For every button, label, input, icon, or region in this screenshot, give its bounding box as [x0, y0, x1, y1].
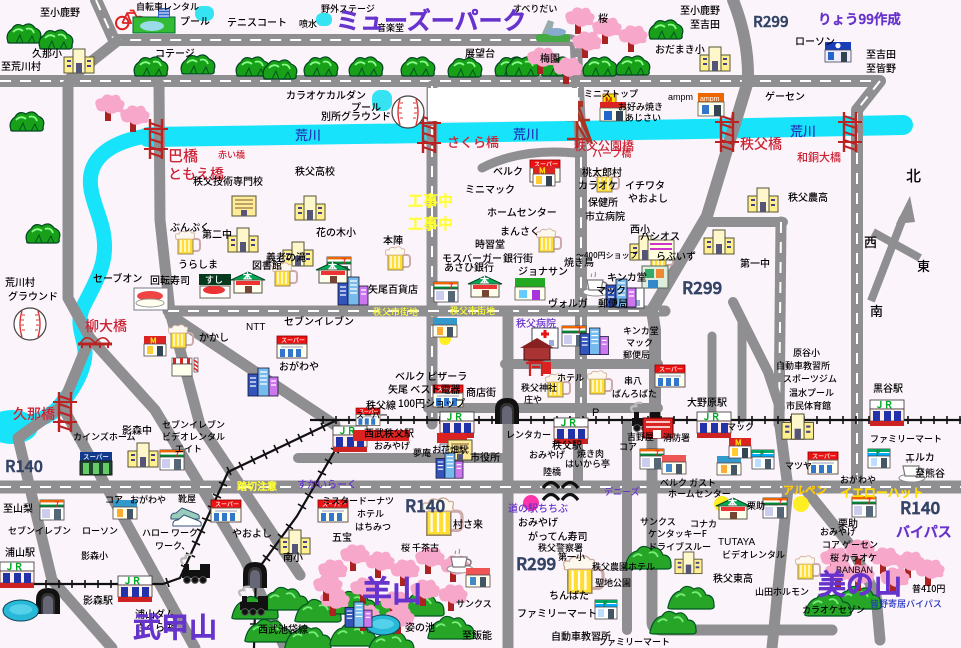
svg-text:山田ホルモン: 山田ホルモン: [755, 585, 809, 598]
svg-text:TUTAYA: TUTAYA: [718, 533, 756, 548]
svg-text:和銅大橋: 和銅大橋: [797, 149, 841, 165]
svg-text:陸橋: 陸橋: [543, 465, 561, 478]
svg-text:ちんばた: ちんばた: [549, 587, 589, 602]
svg-text:聖地公園: 聖地公園: [595, 576, 631, 589]
svg-text:ジョナサン: ジョナサン: [518, 263, 568, 278]
svg-text:至小鹿野: 至小鹿野: [680, 2, 720, 17]
svg-text:R140: R140: [405, 492, 446, 517]
svg-text:影森中: 影森中: [122, 422, 152, 437]
svg-text:おみやげ: おみやげ: [529, 448, 565, 461]
svg-text:コア: コア: [105, 493, 123, 506]
svg-text:コア: コア: [619, 440, 637, 453]
svg-text:ばんろばた: ばんろばた: [612, 387, 657, 400]
svg-text:工事中: 工事中: [408, 213, 453, 234]
svg-text:R140: R140: [900, 494, 941, 519]
svg-text:展望台: 展望台: [465, 45, 495, 60]
svg-text:梅園: 梅園: [540, 50, 560, 65]
svg-text:ホームセンター: ホームセンター: [668, 487, 731, 500]
svg-text:秩父線: 秩父線: [366, 397, 396, 412]
svg-text:ベルク: ベルク: [493, 163, 523, 178]
svg-text:ミニマック: ミニマック: [465, 181, 515, 196]
svg-text:秩父病院: 秩父病院: [516, 315, 556, 330]
svg-text:至皆野: 至皆野: [866, 60, 896, 75]
svg-text:らぶいず: らぶいず: [656, 248, 696, 263]
svg-text:西: 西: [864, 232, 877, 251]
svg-text:秩父農高: 秩父農高: [788, 189, 828, 204]
svg-text:バシオス: バシオス: [640, 228, 680, 243]
svg-text:セーブオン: セーブオン: [93, 270, 142, 285]
svg-text:うらしま: うらしま: [178, 256, 218, 271]
svg-text:おみやげ: おみやげ: [518, 514, 558, 529]
svg-text:秩父市街地: 秩父市街地: [450, 304, 495, 317]
svg-text:ミニストップ: ミニストップ: [584, 87, 638, 100]
svg-text:柳大橋: 柳大橋: [85, 316, 127, 336]
svg-text:ベルク ピザーラ: ベルク ピザーラ: [395, 368, 467, 383]
svg-text:ビデオレンタル: ビデオレンタル: [722, 548, 785, 561]
svg-text:まんさく: まんさく: [500, 223, 540, 238]
svg-text:エイト: エイト: [175, 442, 202, 455]
svg-text:自動車教習所: 自動車教習所: [776, 359, 830, 372]
svg-text:至小鹿野: 至小鹿野: [40, 4, 80, 19]
svg-text:南小: 南小: [283, 549, 303, 564]
svg-text:武甲山: 武甲山: [133, 606, 217, 646]
svg-text:郵便局: 郵便局: [598, 295, 628, 310]
svg-text:西武秩父駅: 西武秩父駅: [364, 425, 414, 440]
svg-text:ゲーセン: ゲーセン: [765, 88, 805, 103]
svg-text:荒川: 荒川: [790, 121, 816, 140]
svg-text:西武池袋線: 西武池袋線: [258, 621, 308, 636]
svg-text:第一小: 第一小: [558, 550, 585, 563]
svg-text:荒川: 荒川: [513, 124, 539, 143]
svg-text:回転寿司: 回転寿司: [150, 272, 190, 287]
svg-text:コア ゲーセン: コア ゲーセン: [822, 538, 878, 551]
svg-text:栗助: 栗助: [747, 499, 765, 512]
svg-text:ホームセンター: ホームセンター: [487, 204, 557, 219]
svg-text:あじさい: あじさい: [625, 111, 661, 124]
svg-text:アルペン: アルペン: [783, 482, 827, 498]
svg-text:おがわや: おがわや: [279, 358, 319, 373]
svg-text:本陣: 本陣: [383, 232, 403, 247]
svg-text:〜400円ショップ: 〜400円ショップ: [576, 250, 638, 261]
svg-text:100円ショップ: 100円ショップ: [398, 395, 465, 410]
svg-text:至熊谷: 至熊谷: [915, 465, 945, 480]
svg-text:市民体育館: 市民体育館: [786, 399, 831, 412]
svg-text:消防署: 消防署: [663, 431, 690, 444]
svg-text:プール: プール: [180, 13, 210, 28]
svg-text:すかいらーく: すかいらーく: [297, 476, 357, 491]
svg-text:ワーク、: ワーク、: [155, 539, 190, 552]
svg-text:美の山: 美の山: [818, 563, 902, 603]
svg-text:南: 南: [870, 301, 883, 320]
svg-text:おみやげ: おみやげ: [820, 525, 856, 538]
svg-text:影森駅: 影森駅: [83, 592, 113, 607]
svg-text:村さ来: 村さ来: [453, 516, 483, 531]
svg-text:荒川村: 荒川村: [5, 274, 35, 289]
svg-text:P: P: [592, 404, 599, 420]
svg-text:グラウンド: グラウンド: [8, 288, 58, 303]
svg-text:R140: R140: [5, 453, 43, 477]
svg-text:別所グラウンド: 別所グラウンド: [321, 108, 391, 123]
svg-text:ファミリーマート: ファミリーマート: [870, 432, 942, 445]
svg-text:すべりだい: すべりだい: [513, 2, 557, 15]
svg-text:おみやげ: おみやげ: [374, 439, 410, 452]
svg-text:秩父市街地: 秩父市街地: [373, 305, 418, 318]
svg-text:はちみつ: はちみつ: [355, 520, 391, 533]
svg-text:久那橋: 久那橋: [13, 404, 55, 424]
svg-text:コテージ: コテージ: [155, 45, 195, 60]
svg-text:やおよし: やおよし: [628, 190, 668, 205]
svg-text:荒川: 荒川: [295, 125, 321, 144]
svg-text:セブンイレブン: セブンイレブン: [8, 524, 71, 537]
svg-text:ハロー ワーク: ハロー ワーク: [142, 526, 198, 539]
svg-text:秩父農園ホテル: 秩父農園ホテル: [592, 560, 655, 573]
svg-text:普410円: 普410円: [912, 582, 945, 595]
svg-text:姿の池: 姿の池: [405, 619, 435, 634]
svg-text:バイパス: バイパス: [896, 522, 952, 542]
svg-text:花の木小: 花の木小: [316, 224, 356, 239]
svg-text:至飯能: 至飯能: [462, 627, 492, 642]
svg-text:義老の滝: 義老の滝: [266, 249, 306, 264]
svg-text:すし: すし: [205, 273, 223, 286]
svg-text:ハープ橋: ハープ橋: [592, 145, 631, 160]
svg-text:ぶんぷく: ぶんぷく: [170, 219, 210, 234]
svg-text:R299: R299: [753, 11, 789, 32]
svg-text:ミスタードーナツ: ミスタードーナツ: [322, 494, 394, 507]
svg-text:至吉田: 至吉田: [866, 46, 896, 61]
svg-text:秩父高校: 秩父高校: [295, 163, 335, 178]
svg-text:ホテル: ホテル: [557, 371, 584, 384]
svg-text:マツヤ: マツヤ: [785, 459, 812, 472]
svg-text:原谷小: 原谷小: [793, 346, 820, 359]
svg-text:夢庵: 夢庵: [413, 446, 431, 459]
svg-text:デニーズ: デニーズ: [604, 485, 640, 498]
svg-text:ファミリーマート: ファミリーマート: [598, 635, 670, 648]
svg-text:工事中: 工事中: [408, 190, 453, 211]
svg-text:黒谷駅: 黒谷駅: [873, 380, 903, 395]
svg-text:道の駅ちちぶ: 道の駅ちちぶ: [508, 500, 568, 515]
svg-text:至荒川村: 至荒川村: [1, 58, 41, 73]
svg-text:桜 千茶古: 桜 千茶古: [401, 541, 439, 554]
svg-text:秩父技術専門校: 秩父技術専門校: [193, 173, 263, 188]
svg-text:ホテル: ホテル: [357, 507, 384, 520]
svg-text:テニスコート: テニスコート: [227, 14, 287, 29]
svg-text:第一中: 第一中: [740, 255, 770, 270]
svg-text:おがわや: おがわや: [130, 493, 166, 506]
svg-text:はいから亭: はいから亭: [565, 457, 610, 470]
svg-text:桜: 桜: [598, 10, 608, 25]
svg-text:至吉田: 至吉田: [690, 16, 720, 31]
svg-text:ドライブスルー: ドライブスルー: [648, 540, 711, 553]
svg-text:郵便局: 郵便局: [623, 348, 650, 361]
svg-text:マック: マック: [727, 420, 754, 433]
svg-text:秩父橋: 秩父橋: [740, 134, 782, 154]
svg-text:庄や: 庄や: [524, 393, 542, 406]
svg-text:ローソン: ローソン: [82, 524, 118, 537]
svg-text:温水プール: 温水プール: [789, 386, 834, 399]
svg-text:ローソン: ローソン: [795, 33, 835, 48]
svg-text:東: 東: [917, 256, 930, 275]
svg-text:さくら橋: さくら橋: [447, 132, 499, 151]
svg-text:矢尾百貨店: 矢尾百貨店: [368, 281, 418, 296]
svg-text:北: 北: [906, 165, 921, 186]
svg-text:浦山駅: 浦山駅: [5, 544, 35, 559]
svg-text:喷水: 喷水: [299, 17, 317, 30]
svg-text:ミューズーパーク: ミューズーパーク: [336, 1, 527, 36]
svg-text:市役所: 市役所: [470, 449, 500, 464]
svg-text:踏切注意: 踏切注意: [237, 478, 277, 493]
svg-text:エルカ: エルカ: [905, 449, 935, 464]
svg-text:秩父東高: 秩父東高: [713, 570, 753, 585]
svg-text:至山梨: 至山梨: [3, 500, 33, 515]
svg-text:羊山: 羊山: [362, 567, 422, 611]
svg-text:ampm: ampm: [668, 90, 693, 103]
svg-text:おだまき小: おだまき小: [655, 41, 705, 56]
svg-text:サンクス: サンクス: [456, 597, 492, 610]
svg-text:ヴォルガ: ヴォルガ: [548, 295, 588, 310]
svg-text:保健所: 保健所: [588, 194, 618, 209]
svg-text:カラオケ: カラオケ: [578, 177, 618, 192]
svg-text:五宝: 五宝: [332, 529, 352, 544]
svg-text:カラオケセゾン: カラオケセゾン: [802, 603, 865, 616]
svg-text:商店街: 商店街: [466, 384, 496, 399]
svg-text:スポーツジム: スポーツジム: [783, 372, 837, 385]
svg-text:かかし: かかし: [199, 329, 229, 344]
svg-text:レンタカー: レンタカー: [506, 428, 551, 441]
svg-text:巴橋: 巴橋: [168, 145, 198, 166]
svg-text:赤い橋: 赤い橋: [218, 148, 245, 161]
svg-text:串八: 串八: [624, 374, 642, 387]
svg-text:大野原駅: 大野原駅: [687, 394, 727, 409]
svg-text:時習堂: 時習堂: [475, 236, 505, 251]
svg-text:影森小: 影森小: [81, 549, 108, 562]
svg-text:あさひ銀行: あさひ銀行: [444, 259, 494, 274]
svg-text:自転車レンタル: 自転車レンタル: [136, 0, 199, 13]
svg-text:セブンイレブン: セブンイレブン: [284, 313, 354, 328]
svg-text:やおよし: やおよし: [232, 525, 272, 540]
svg-text:りょう99作成: りょう99作成: [818, 8, 901, 28]
svg-text:ファミリーマート: ファミリーマート: [517, 605, 597, 620]
svg-text:NTT: NTT: [246, 318, 265, 333]
svg-text:コナカ: コナカ: [690, 517, 717, 530]
svg-text:靴屋: 靴屋: [178, 492, 196, 505]
svg-text:矢尾 ベスト電器: 矢尾 ベスト電器: [388, 381, 460, 396]
svg-text:R299: R299: [682, 274, 723, 299]
svg-text:お花畑駅: お花畑駅: [432, 443, 468, 456]
svg-text:市立病院: 市立病院: [585, 208, 625, 223]
